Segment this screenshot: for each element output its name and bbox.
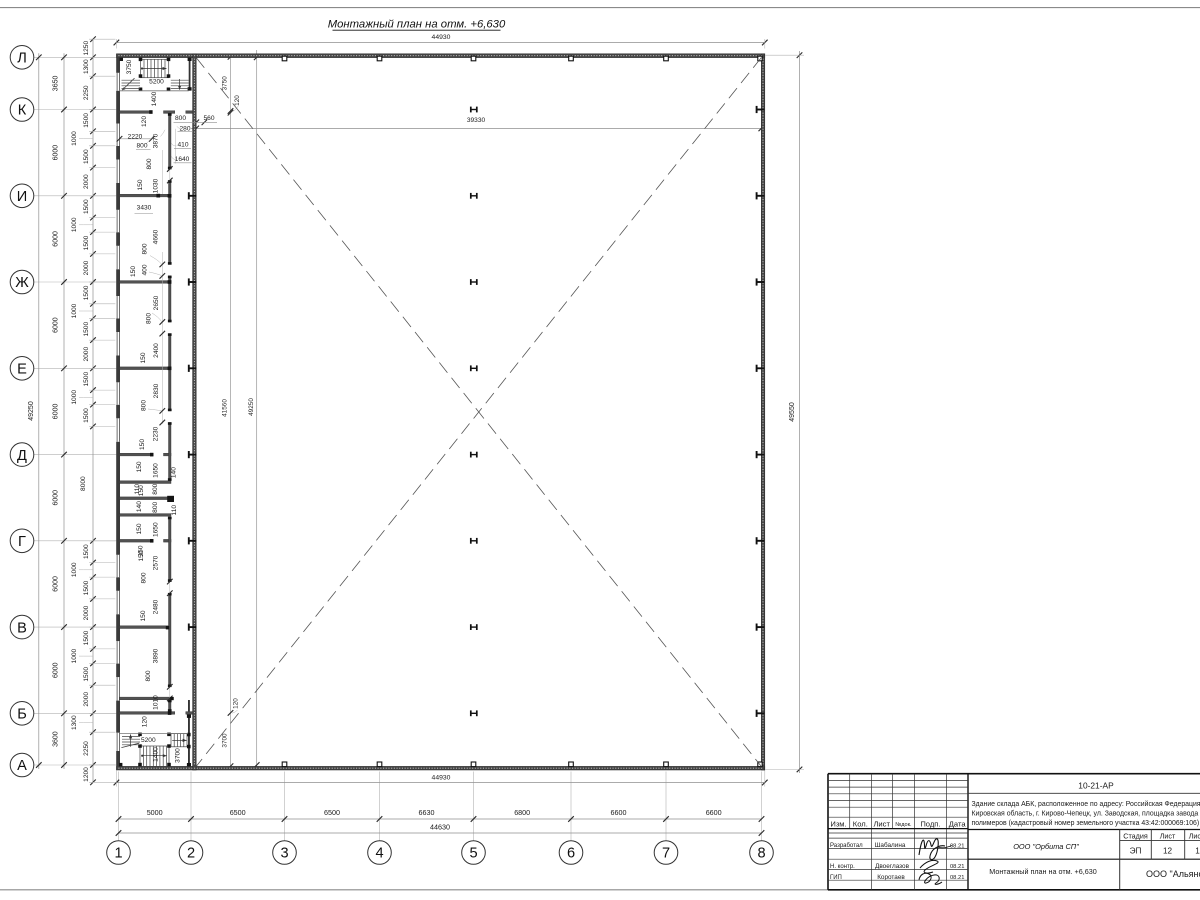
svg-text:140: 140: [136, 501, 143, 512]
svg-text:110: 110: [171, 505, 178, 516]
svg-text:150: 150: [137, 179, 144, 190]
svg-text:120: 120: [141, 116, 148, 127]
svg-text:Коротаев: Коротаев: [877, 874, 905, 881]
svg-text:5: 5: [469, 846, 477, 862]
svg-text:3750: 3750: [126, 59, 133, 74]
svg-text:1: 1: [1195, 847, 1200, 856]
svg-text:1000: 1000: [71, 562, 78, 577]
svg-text:6630: 6630: [419, 808, 435, 817]
svg-text:1640: 1640: [175, 156, 190, 163]
svg-text:Лист: Лист: [1189, 831, 1200, 840]
svg-text:2000: 2000: [83, 174, 90, 189]
svg-text:1500: 1500: [83, 322, 90, 337]
svg-text:150: 150: [139, 439, 146, 450]
svg-text:2400: 2400: [153, 343, 160, 358]
svg-text:410: 410: [177, 142, 188, 149]
svg-text:3: 3: [280, 846, 288, 862]
svg-text:3430: 3430: [137, 205, 152, 212]
svg-text:Монтажный план на отм. +6,630: Монтажный план на отм. +6,630: [328, 19, 506, 31]
svg-text:1400: 1400: [151, 91, 158, 106]
svg-text:3750: 3750: [221, 76, 228, 91]
svg-text:№док.: №док.: [895, 822, 912, 828]
svg-text:800: 800: [141, 243, 148, 254]
svg-text:560: 560: [203, 115, 214, 122]
svg-text:800: 800: [175, 115, 186, 122]
svg-text:2480: 2480: [153, 599, 160, 614]
svg-text:6600: 6600: [706, 808, 722, 817]
svg-text:800: 800: [146, 158, 153, 169]
svg-text:8000: 8000: [80, 476, 87, 491]
svg-text:44930: 44930: [432, 775, 451, 782]
svg-text:150: 150: [136, 461, 143, 472]
svg-text:3650: 3650: [53, 76, 60, 92]
svg-text:ЭП: ЭП: [1130, 847, 1142, 856]
svg-text:2000: 2000: [83, 260, 90, 275]
svg-text:5200: 5200: [149, 79, 164, 86]
svg-text:Подп.: Подп.: [920, 819, 940, 828]
svg-text:6000: 6000: [53, 576, 60, 592]
svg-text:1650: 1650: [153, 522, 160, 537]
svg-text:4660: 4660: [153, 229, 160, 244]
svg-text:2570: 2570: [153, 555, 160, 570]
svg-text:800: 800: [152, 483, 159, 494]
svg-text:1650: 1650: [153, 463, 160, 478]
svg-text:1400: 1400: [153, 747, 160, 762]
svg-text:Е: Е: [17, 362, 27, 378]
svg-text:полимеров (кадастровый номер з: полимеров (кадастровый номер земельного …: [972, 819, 1200, 827]
svg-text:41560: 41560: [221, 399, 228, 417]
svg-text:Б: Б: [17, 707, 27, 723]
svg-text:6000: 6000: [53, 145, 60, 161]
svg-text:Монтажный план на отм. +6,630: Монтажный план на отм. +6,630: [989, 867, 1096, 876]
svg-text:1300: 1300: [83, 59, 90, 74]
svg-text:3700: 3700: [175, 748, 182, 763]
svg-text:39330: 39330: [467, 117, 486, 124]
svg-text:8: 8: [757, 846, 765, 862]
svg-text:Н. контр.: Н. контр.: [830, 864, 855, 870]
svg-text:Дата: Дата: [949, 819, 967, 828]
svg-text:2250: 2250: [83, 741, 90, 756]
svg-text:3600: 3600: [53, 731, 60, 747]
svg-text:6500: 6500: [324, 808, 340, 817]
svg-text:800: 800: [136, 143, 147, 150]
svg-text:1000: 1000: [71, 648, 78, 663]
svg-text:140: 140: [171, 467, 178, 478]
svg-text:44930: 44930: [432, 34, 451, 41]
svg-text:2830: 2830: [153, 383, 160, 398]
svg-text:1500: 1500: [83, 285, 90, 300]
svg-text:Здание склада АБК, расположенн: Здание склада АБК, расположенное по адре…: [972, 800, 1200, 808]
svg-text:6: 6: [567, 846, 575, 862]
svg-text:800: 800: [145, 670, 152, 681]
svg-text:А: А: [17, 758, 27, 774]
svg-text:ООО "Альянс: ООО "Альянс: [1146, 869, 1200, 879]
svg-text:08.21: 08.21: [950, 864, 965, 870]
svg-text:5200: 5200: [141, 737, 156, 744]
svg-text:Двоеглазов: Двоеглазов: [875, 863, 910, 870]
svg-text:49250: 49250: [248, 398, 255, 416]
svg-text:2220: 2220: [128, 134, 143, 141]
svg-text:12: 12: [1163, 847, 1173, 856]
svg-text:800: 800: [146, 313, 153, 324]
svg-text:1000: 1000: [71, 390, 78, 405]
svg-text:120: 120: [234, 95, 241, 106]
svg-text:150: 150: [138, 550, 145, 561]
svg-text:Д: Д: [17, 448, 27, 464]
svg-text:120: 120: [142, 716, 149, 727]
svg-text:2000: 2000: [83, 692, 90, 707]
svg-text:7: 7: [662, 846, 670, 862]
svg-text:2: 2: [187, 846, 195, 862]
svg-text:И: И: [17, 189, 28, 205]
svg-text:Г: Г: [18, 534, 26, 550]
svg-text:1500: 1500: [83, 113, 90, 128]
svg-text:Разработал: Разработал: [830, 843, 863, 849]
svg-text:1000: 1000: [71, 131, 78, 146]
svg-text:1500: 1500: [83, 667, 90, 682]
svg-text:08.21: 08.21: [950, 875, 965, 881]
svg-text:2000: 2000: [83, 605, 90, 620]
svg-text:44630: 44630: [430, 822, 450, 831]
svg-text:6000: 6000: [53, 490, 60, 506]
svg-text:2250: 2250: [83, 85, 90, 100]
svg-text:3890: 3890: [153, 648, 160, 663]
svg-text:150: 150: [130, 266, 137, 277]
svg-text:49550: 49550: [789, 402, 796, 422]
svg-text:Ж: Ж: [15, 275, 29, 291]
svg-text:6000: 6000: [53, 662, 60, 678]
svg-text:1000: 1000: [71, 303, 78, 318]
svg-text:Изм.: Изм.: [830, 819, 846, 828]
svg-text:6500: 6500: [230, 808, 246, 817]
svg-text:1010: 1010: [153, 695, 160, 710]
svg-text:Лист: Лист: [1160, 831, 1176, 840]
svg-text:Кировская область, г. Кирово-Ч: Кировская область, г. Кирово-Чепецк, ул.…: [972, 809, 1199, 817]
svg-text:2650: 2650: [153, 295, 160, 310]
svg-text:1500: 1500: [83, 235, 90, 250]
svg-text:3700: 3700: [221, 733, 228, 748]
svg-text:1500: 1500: [83, 149, 90, 164]
svg-text:1250: 1250: [83, 41, 90, 56]
svg-text:Стадия: Стадия: [1123, 831, 1148, 840]
svg-text:1: 1: [114, 846, 122, 862]
svg-text:4: 4: [375, 846, 383, 862]
svg-text:1000: 1000: [71, 217, 78, 232]
svg-text:120: 120: [233, 698, 240, 709]
svg-text:6600: 6600: [611, 808, 627, 817]
svg-text:2230: 2230: [153, 426, 160, 441]
svg-text:10-21-АР: 10-21-АР: [1078, 780, 1114, 790]
svg-text:400: 400: [142, 264, 149, 275]
svg-text:1500: 1500: [83, 580, 90, 595]
svg-text:ООО "Орбита СП": ООО "Орбита СП": [1013, 842, 1079, 851]
svg-text:5000: 5000: [147, 808, 163, 817]
svg-text:1500: 1500: [83, 630, 90, 645]
svg-text:800: 800: [152, 501, 159, 512]
svg-text:800: 800: [140, 400, 147, 411]
svg-text:6000: 6000: [53, 404, 60, 420]
svg-text:1300: 1300: [71, 715, 78, 730]
svg-text:ГИП: ГИП: [830, 875, 842, 881]
svg-text:150: 150: [140, 352, 147, 363]
svg-text:1200: 1200: [83, 767, 90, 782]
svg-text:Л: Л: [17, 51, 27, 67]
svg-text:Шабалина: Шабалина: [875, 841, 906, 849]
svg-text:1500: 1500: [83, 199, 90, 214]
svg-text:1500: 1500: [83, 408, 90, 423]
svg-text:К: К: [18, 103, 27, 119]
svg-text:Кол.: Кол.: [853, 819, 868, 828]
svg-text:1030: 1030: [153, 178, 160, 193]
svg-text:49250: 49250: [28, 401, 35, 421]
svg-text:1500: 1500: [83, 544, 90, 559]
svg-text:В: В: [17, 620, 27, 636]
svg-text:1500: 1500: [83, 372, 90, 387]
svg-text:6000: 6000: [53, 231, 60, 247]
svg-text:Лист: Лист: [873, 819, 890, 828]
svg-text:800: 800: [141, 572, 148, 583]
svg-text:08.21: 08.21: [950, 844, 965, 850]
svg-text:150: 150: [140, 610, 147, 621]
svg-text:150: 150: [138, 485, 145, 496]
svg-text:2000: 2000: [83, 347, 90, 362]
svg-text:6800: 6800: [514, 808, 530, 817]
svg-text:6000: 6000: [53, 317, 60, 333]
svg-text:150: 150: [136, 523, 143, 534]
